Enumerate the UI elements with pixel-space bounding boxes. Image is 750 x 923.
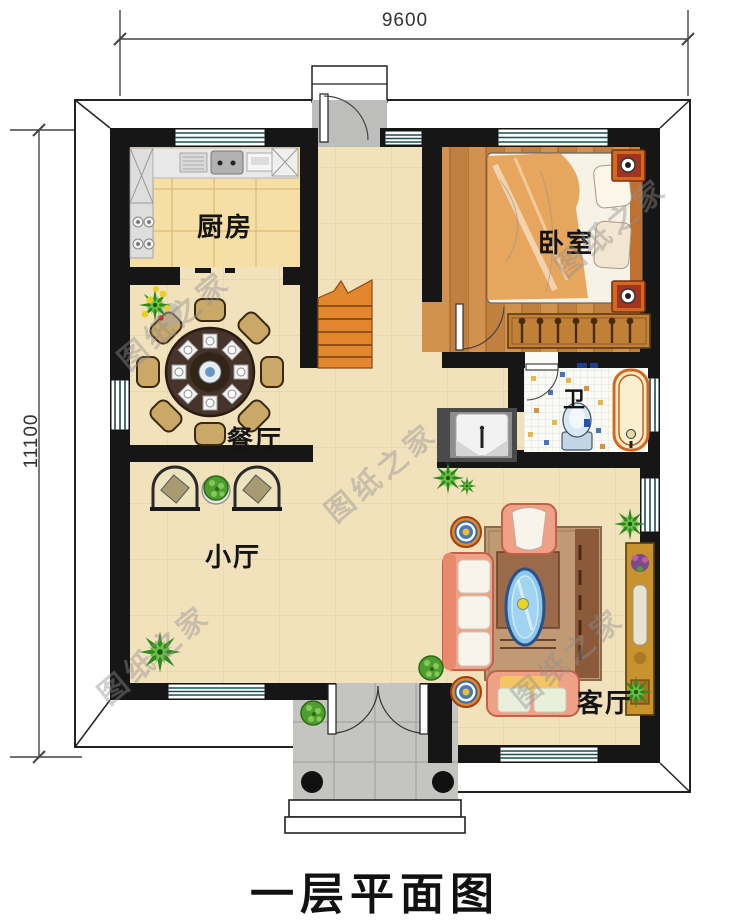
dimension-width-label: 9600 bbox=[340, 10, 470, 32]
room-label-living: 客厅 bbox=[577, 683, 633, 720]
porch-column bbox=[432, 771, 454, 793]
armchair-single bbox=[502, 504, 556, 554]
porch-column bbox=[301, 771, 323, 793]
spiky-plant bbox=[432, 462, 464, 494]
window-back-small bbox=[385, 131, 422, 145]
corner-bush bbox=[419, 656, 443, 680]
door-leaf-left bbox=[328, 684, 336, 734]
back-door-leaf bbox=[320, 94, 328, 142]
nightstand bbox=[612, 281, 645, 312]
sofa-three-seat bbox=[443, 553, 493, 670]
door-leaf-right bbox=[420, 684, 428, 734]
room-label-hall: 小厅 bbox=[205, 537, 261, 574]
room-label-bath: 卫 bbox=[563, 382, 587, 414]
room-label-dining: 餐厅 bbox=[227, 420, 283, 457]
plan-title: 一层平面图 bbox=[0, 858, 750, 922]
porch-step bbox=[289, 800, 461, 817]
bedroom-door-leaf bbox=[456, 304, 463, 350]
bath-door-leaf bbox=[526, 364, 558, 370]
bedroom bbox=[422, 147, 650, 352]
palm-plant bbox=[614, 508, 646, 540]
room-label-kitchen: 厨房 bbox=[197, 207, 253, 244]
porch-step bbox=[285, 817, 465, 833]
floor-plan: 9600 11100 厨房 卧室 餐厅 卫 小厅 客厅 图纸之家 图纸之家 图纸… bbox=[0, 0, 750, 923]
potted-plant bbox=[204, 476, 228, 500]
round-stool bbox=[451, 677, 481, 707]
kitchen-sink bbox=[211, 151, 243, 174]
bathtub bbox=[612, 368, 648, 452]
round-stool bbox=[451, 517, 481, 547]
porch-tree bbox=[301, 701, 325, 725]
window-living-bottom bbox=[500, 747, 598, 762]
wardrobe bbox=[508, 314, 650, 348]
coffee-table bbox=[506, 569, 544, 645]
dimension-height-label: 11100 bbox=[21, 391, 43, 491]
back-entry bbox=[312, 66, 387, 147]
window-hall-bottom bbox=[168, 684, 265, 699]
window-kitchen bbox=[175, 129, 265, 146]
spiky-plant bbox=[457, 476, 476, 495]
window-bedroom bbox=[498, 129, 608, 146]
